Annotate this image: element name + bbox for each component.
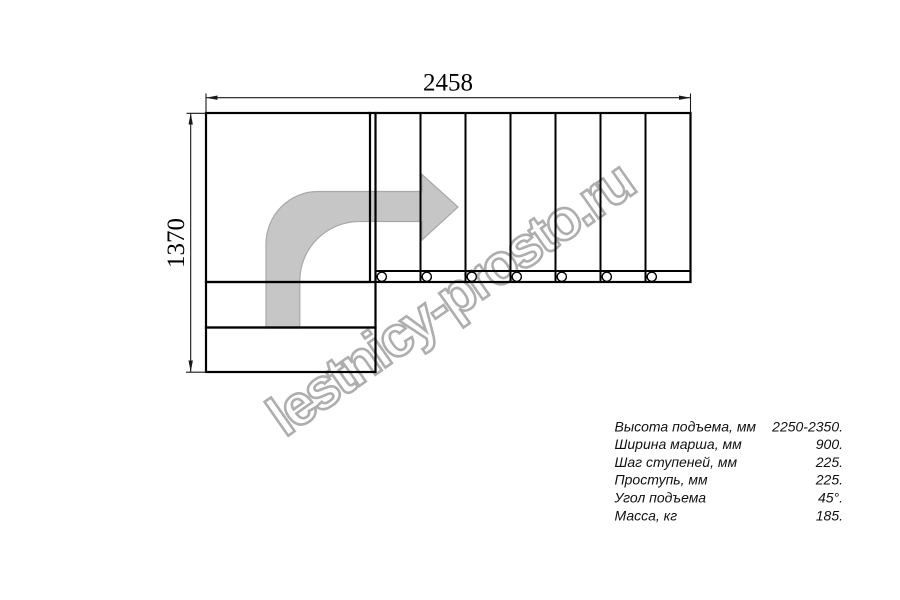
svg-text:225.: 225. <box>815 454 843 470</box>
svg-text:45°.: 45°. <box>818 490 843 506</box>
svg-text:2458: 2458 <box>423 70 473 97</box>
svg-text:225.: 225. <box>815 472 843 488</box>
svg-text:900.: 900. <box>816 436 843 452</box>
svg-text:Ширина марша, мм: Ширина марша, мм <box>615 436 743 452</box>
svg-text:Проступь, мм: Проступь, мм <box>615 472 709 488</box>
svg-text:Высота подъема, мм: Высота подъема, мм <box>615 418 757 434</box>
svg-text:Шаг ступеней, мм: Шаг ступеней, мм <box>615 454 738 470</box>
svg-text:185.: 185. <box>816 507 843 523</box>
svg-text:1370: 1370 <box>163 218 190 268</box>
svg-text:Масса, кг: Масса, кг <box>615 507 678 523</box>
svg-text:Угол подъема: Угол подъема <box>614 490 707 506</box>
svg-text:2250-2350.: 2250-2350. <box>771 418 843 434</box>
